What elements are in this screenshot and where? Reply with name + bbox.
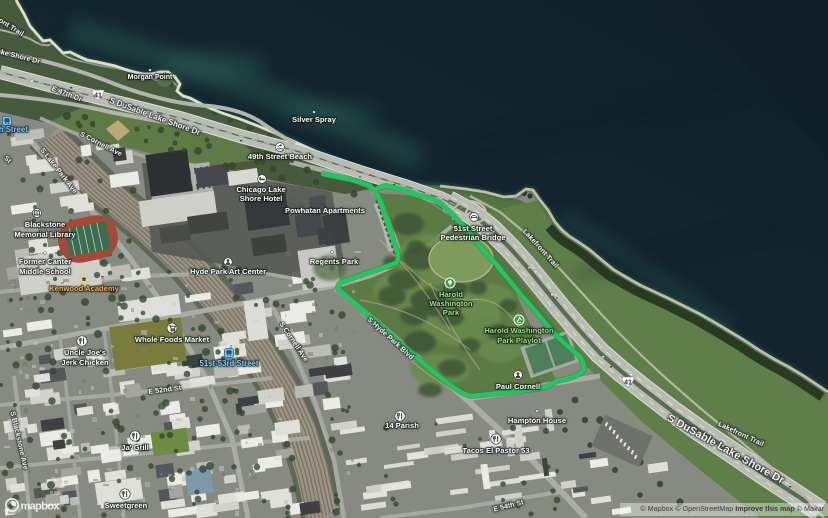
svg-text:51st Street: 51st Street bbox=[454, 224, 493, 233]
svg-text:Blackstone: Blackstone bbox=[25, 220, 66, 229]
svg-text:Ja' Grill: Ja' Grill bbox=[121, 443, 149, 452]
svg-text:Regents Park: Regents Park bbox=[310, 257, 359, 266]
svg-text:Pedestrian Bridge: Pedestrian Bridge bbox=[441, 233, 506, 242]
svg-text:Silver Spray: Silver Spray bbox=[292, 115, 337, 124]
svg-text:th Street: th Street bbox=[0, 125, 28, 134]
svg-text:49th Street Beach: 49th Street Beach bbox=[248, 152, 313, 161]
svg-text:41: 41 bbox=[94, 92, 102, 99]
svg-text:Memorial Library: Memorial Library bbox=[14, 230, 76, 239]
svg-text:Harold Washington: Harold Washington bbox=[484, 326, 554, 335]
svg-text:Former Canter: Former Canter bbox=[19, 257, 71, 266]
svg-text:51st-53rd Street: 51st-53rd Street bbox=[200, 359, 259, 368]
svg-text:Hampton House: Hampton House bbox=[508, 416, 566, 425]
svg-text:14 Parish: 14 Parish bbox=[385, 421, 419, 430]
svg-text:Washington: Washington bbox=[429, 299, 473, 308]
svg-text:Hyde Park Art Center: Hyde Park Art Center bbox=[190, 267, 266, 276]
svg-text:Morgan Point: Morgan Point bbox=[128, 74, 173, 81]
svg-text:41: 41 bbox=[624, 379, 632, 386]
svg-text:Tacos El Pastor 53: Tacos El Pastor 53 bbox=[463, 446, 530, 455]
svg-text:Park Playlot: Park Playlot bbox=[497, 336, 541, 345]
svg-text:Powhatan Apartments: Powhatan Apartments bbox=[285, 206, 365, 215]
svg-text:Uncle Joe's: Uncle Joe's bbox=[64, 348, 106, 357]
svg-text:© Mapbox © OpenStreetMap Impro: © Mapbox © OpenStreetMap Improve this ma… bbox=[640, 504, 824, 513]
svg-text:Middle School: Middle School bbox=[19, 267, 70, 276]
svg-text:Whole Foods Market: Whole Foods Market bbox=[135, 335, 210, 344]
svg-text:Chicago Lake: Chicago Lake bbox=[236, 185, 285, 194]
svg-text:Shore Hotel: Shore Hotel bbox=[240, 194, 283, 203]
svg-text:Harold: Harold bbox=[439, 290, 463, 299]
svg-text:Kenwood Academy: Kenwood Academy bbox=[49, 284, 120, 293]
svg-text:Jerk Chicken: Jerk Chicken bbox=[61, 358, 109, 367]
svg-text:Park: Park bbox=[443, 308, 460, 317]
svg-text:mapbox: mapbox bbox=[21, 501, 61, 513]
svg-text:Sweetgreen: Sweetgreen bbox=[105, 501, 148, 510]
svg-text:Paul Cornell: Paul Cornell bbox=[496, 382, 540, 391]
